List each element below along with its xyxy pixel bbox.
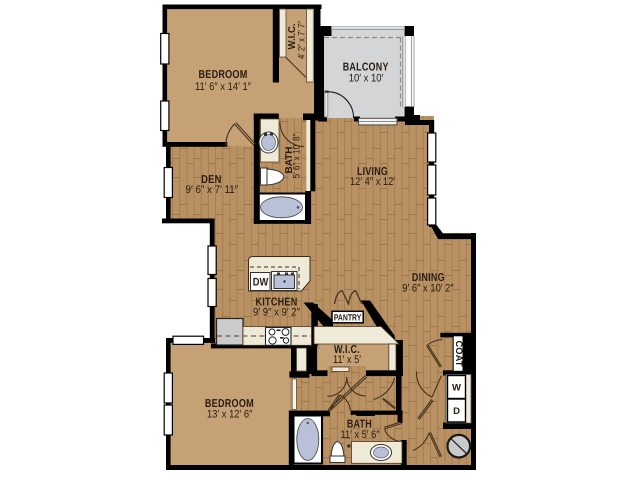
svg-text:11′ x 5′ 6″: 11′ x 5′ 6″ [341,429,380,441]
svg-text:13′ x 12′ 6″: 13′ x 12′ 6″ [207,408,253,420]
svg-text:12′ 4″ x 12′: 12′ 4″ x 12′ [350,176,395,188]
svg-text:COAT: COAT [453,341,464,367]
svg-text:11′ x 5′: 11′ x 5′ [333,354,361,366]
svg-text:D: D [453,406,460,417]
svg-text:9′ 6″ x 7′ 11″: 9′ 6″ x 7′ 11″ [186,184,239,196]
svg-text:9′ 6″ x 10′ 2″: 9′ 6″ x 10′ 2″ [402,282,454,294]
svg-text:10′ x 10′: 10′ x 10′ [349,72,384,84]
svg-text:DW: DW [253,277,269,289]
svg-text:BEDROOM: BEDROOM [199,69,248,81]
svg-text:5′ 6″ x 10′ 8″: 5′ 6″ x 10′ 8″ [291,133,302,179]
svg-text:4′ 2″ x 7′ 7″: 4′ 2″ x 7′ 7″ [296,20,307,59]
svg-text:9′ 9″ x 9′ 2″: 9′ 9″ x 9′ 2″ [253,307,300,319]
svg-text:PANTRY: PANTRY [334,312,362,322]
svg-text:11′ 6″ x 14′ 1″: 11′ 6″ x 14′ 1″ [195,81,251,93]
svg-text:W: W [452,383,461,394]
